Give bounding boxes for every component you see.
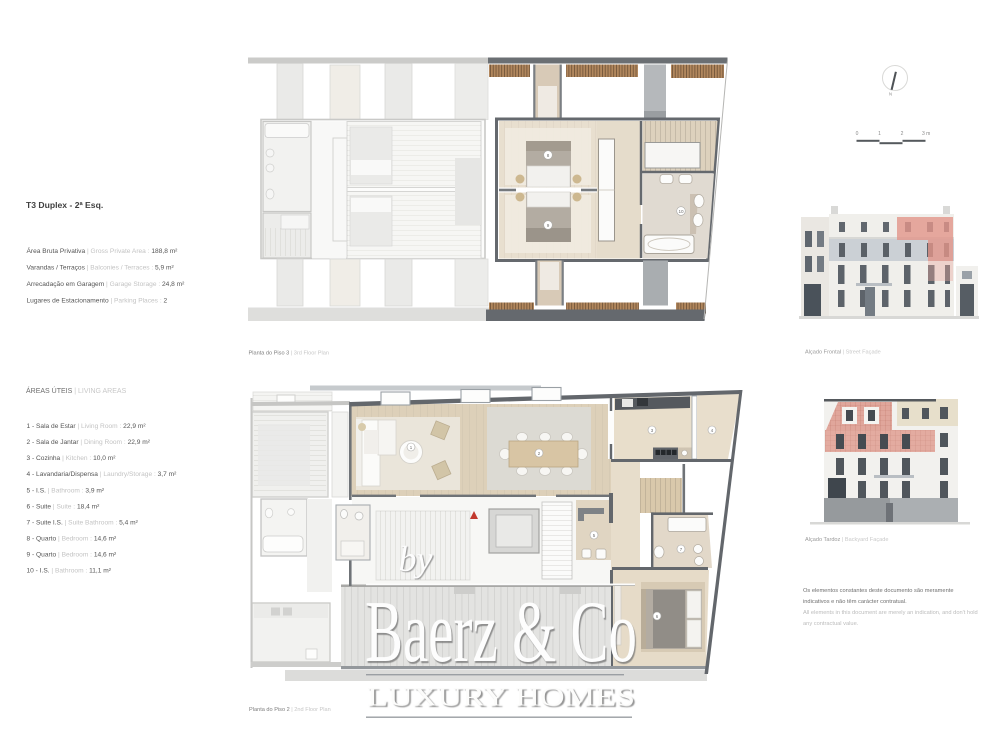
svg-text:by: by (399, 539, 433, 579)
svg-text:Varandas / Terraços | Balconie: Varandas / Terraços | Balconies / Terrac… (27, 265, 175, 272)
svg-text:1: 1 (878, 131, 881, 137)
svg-text:10: 10 (678, 209, 684, 214)
svg-text:Lugares de Estacionamento | Pa: Lugares de Estacionamento | Parking Plac… (27, 298, 168, 305)
svg-text:10 - I.S. | Bathroom : 11,1 m: 10 - I.S. | Bathroom : 11,1 m² (27, 568, 112, 575)
svg-text:Planta do Piso 2 | 2nd Floor P: Planta do Piso 2 | 2nd Floor Plan (249, 707, 331, 713)
svg-text:T3 Duplex - 2ª Esq.: T3 Duplex - 2ª Esq. (26, 200, 103, 210)
svg-text:1 - Sala de Estar | Living Roo: 1 - Sala de Estar | Living Room : 22,9 m… (27, 423, 147, 430)
svg-text:any contractual value.: any contractual value. (803, 621, 859, 627)
svg-text:6 - Suite | Suite : 18,4 m²: 6 - Suite | Suite : 18,4 m² (27, 504, 101, 511)
svg-text:3 m: 3 m (922, 131, 930, 137)
svg-text:indicativos e não têm carácter: indicativos e não têm carácter contratua… (803, 599, 907, 605)
svg-text:9: 9 (547, 223, 550, 228)
svg-text:Arrecadação em Garagem | Garag: Arrecadação em Garagem | Garage Storage … (27, 281, 186, 288)
svg-text:Alçado Tardoz | Backyard Façad: Alçado Tardoz | Backyard Façade (805, 537, 888, 543)
svg-text:0: 0 (856, 131, 859, 137)
svg-text:2 - Sala de Jantar | Dining Ro: 2 - Sala de Jantar | Dining Room : 22,9 … (27, 439, 151, 446)
svg-text:4 - Lavandaria/Dispensa | Laun: 4 - Lavandaria/Dispensa | Laundry/Storag… (27, 471, 178, 478)
svg-text:3 - Cozinha | Kitchen : 10,0: 3 - Cozinha | Kitchen : 10,0 m² (27, 455, 117, 462)
svg-text:2: 2 (901, 131, 904, 137)
svg-text:8: 8 (547, 153, 550, 158)
svg-text:Os elementos constantes deste: Os elementos constantes deste documento … (803, 588, 954, 594)
svg-text:7 - Suite I.S. | Suite Bathroo: 7 - Suite I.S. | Suite Bathroom : 5,4 m² (27, 520, 139, 527)
svg-text:Planta do Piso 3 | 3rd Floor P: Planta do Piso 3 | 3rd Floor Plan (249, 351, 329, 357)
svg-text:Alçado Frontal | Street Façade: Alçado Frontal | Street Façade (805, 350, 881, 356)
svg-text:Área Bruta Privativa | Gross P: Área Bruta Privativa | Gross Private Are… (27, 246, 179, 255)
svg-text:9 - Quarto | Bedroom : 14,6 m: 9 - Quarto | Bedroom : 14,6 m² (27, 552, 117, 559)
svg-text:8 - Quarto | Bedroom : 14,6 m: 8 - Quarto | Bedroom : 14,6 m² (27, 536, 117, 543)
svg-text:5 - I.S. | Bathroom : 3,9 m²: 5 - I.S. | Bathroom : 3,9 m² (27, 488, 105, 495)
svg-text:LUXURY HOMES: LUXURY HOMES (367, 683, 635, 712)
svg-text:Baerz & Co: Baerz & Co (365, 584, 637, 681)
svg-text:ÁREAS ÚTEIS | LIVING AREAS: ÁREAS ÚTEIS | LIVING AREAS (26, 386, 127, 395)
svg-text:N: N (889, 92, 892, 97)
svg-text:All elements in this document: All elements in this document are merely… (803, 610, 978, 616)
